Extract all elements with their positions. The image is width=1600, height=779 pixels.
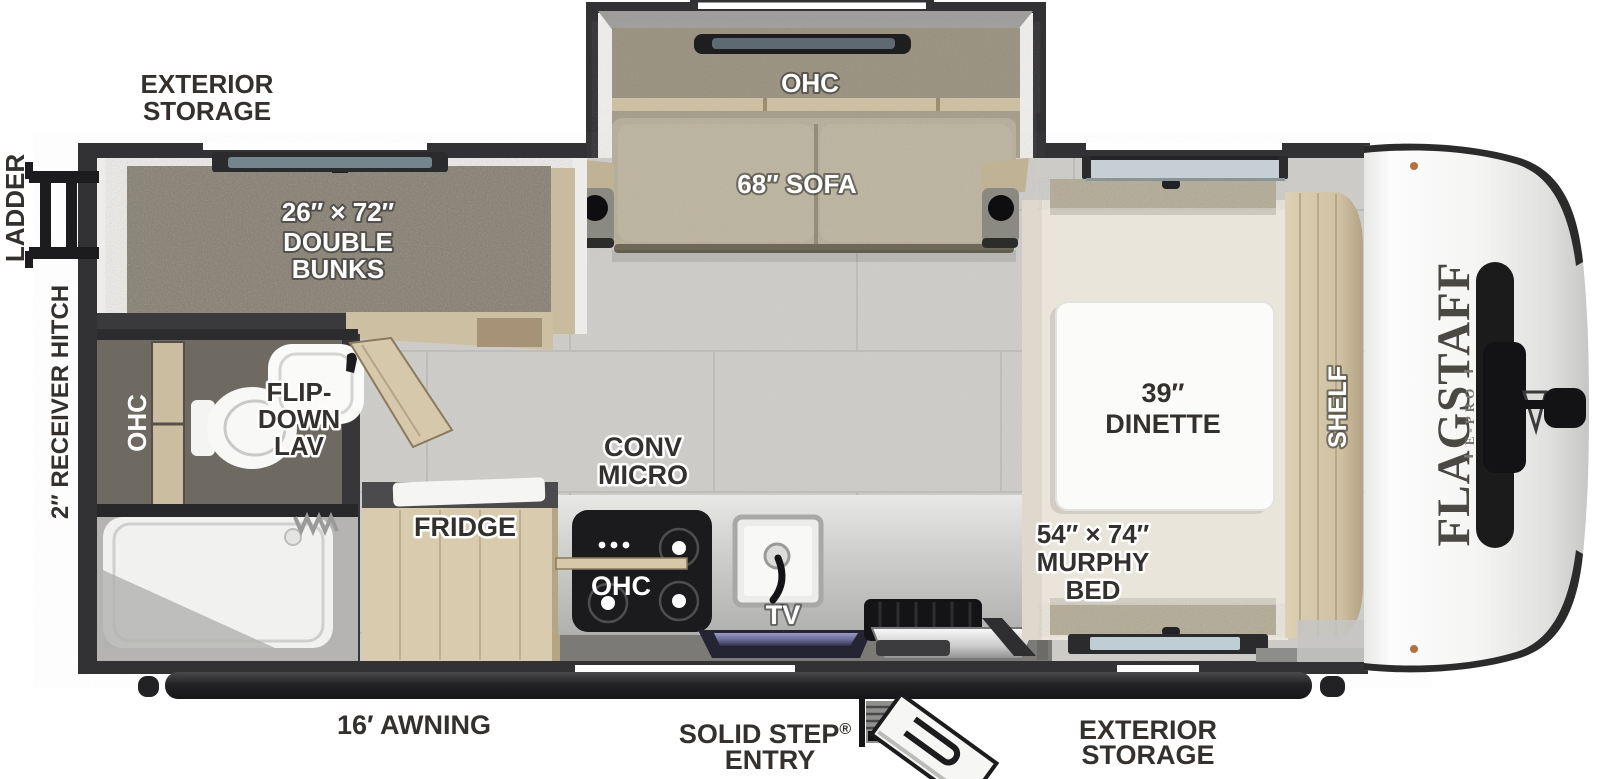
svg-text:BED: BED [1066, 575, 1121, 605]
svg-text:FRIDGE: FRIDGE [414, 512, 516, 542]
svg-text:OHC: OHC [122, 394, 152, 452]
svg-text:STORAGE: STORAGE [143, 96, 271, 126]
svg-text:SHELF: SHELF [1324, 366, 1352, 448]
svg-text:LAV: LAV [274, 431, 325, 461]
svg-text:2″ RECEIVER HITCH: 2″ RECEIVER HITCH [47, 285, 74, 519]
svg-text:TV: TV [766, 600, 801, 630]
svg-text:FLIP-: FLIP- [267, 377, 332, 407]
svg-text:EXTERIOR: EXTERIOR [141, 69, 274, 99]
svg-text:16′ AWNING: 16′ AWNING [337, 710, 491, 740]
svg-text:E-PRO: E-PRO [1462, 385, 1477, 445]
svg-text:DINETTE: DINETTE [1105, 409, 1221, 439]
svg-text:DOUBLE: DOUBLE [283, 227, 393, 257]
svg-text:68″ SOFA: 68″ SOFA [737, 169, 857, 199]
svg-text:STORAGE: STORAGE [1081, 740, 1214, 770]
svg-text:OHC: OHC [781, 68, 839, 98]
svg-text:26″ × 72″: 26″ × 72″ [282, 197, 394, 227]
svg-text:CONV: CONV [604, 432, 682, 462]
svg-text:54″ × 74″: 54″ × 74″ [1037, 519, 1149, 549]
svg-text:DOWN: DOWN [258, 404, 340, 434]
svg-text:LADDER: LADDER [0, 154, 30, 263]
svg-text:39″: 39″ [1142, 378, 1185, 408]
svg-text:ENTRY: ENTRY [725, 745, 816, 775]
svg-text:MICRO: MICRO [598, 460, 688, 490]
svg-text:MURPHY: MURPHY [1037, 547, 1150, 577]
svg-text:OHC: OHC [591, 571, 651, 601]
svg-text:BUNKS: BUNKS [292, 254, 384, 284]
